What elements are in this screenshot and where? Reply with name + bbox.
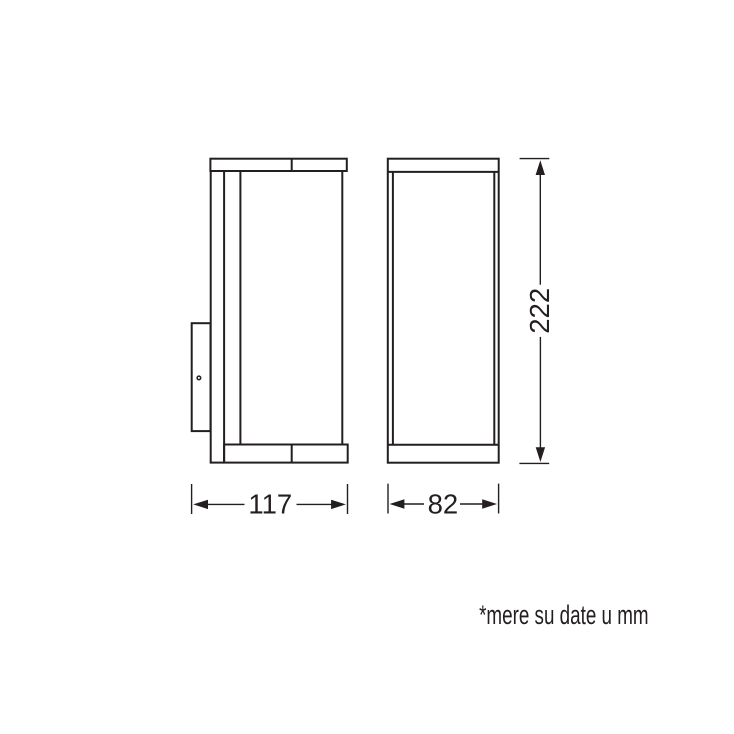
svg-text:82: 82 [428, 488, 459, 519]
svg-text:*mere su date u mm: *mere su date u mm [479, 600, 648, 630]
svg-text:117: 117 [248, 488, 292, 519]
svg-text:222: 222 [524, 288, 555, 334]
